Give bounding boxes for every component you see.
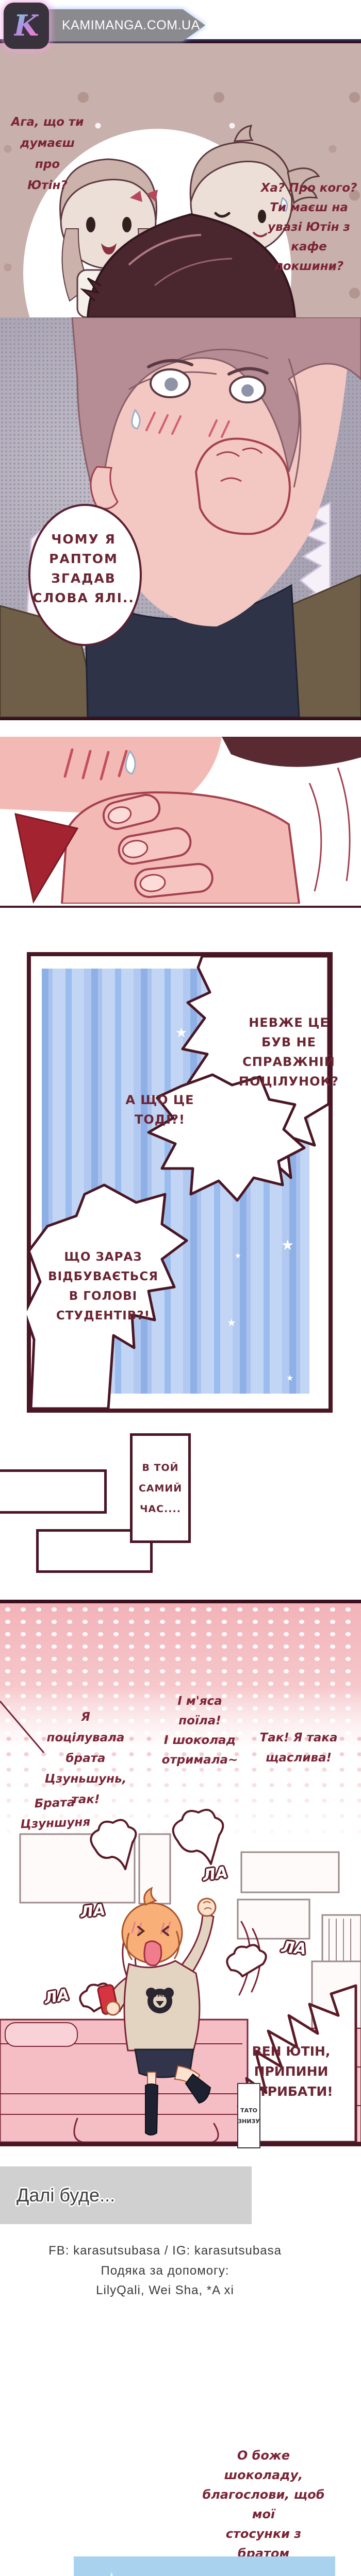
speech-left: Ага, що ти думаєш про Ютін? [6,112,89,196]
dad-note-box: ТАТО ЗНИЗУ [237,2083,260,2148]
logo-k-icon: K [14,9,39,43]
speech-line: думаєш про [6,133,89,175]
panel-praying: ★ ★ ★ ★ ★ ★ ★ ★ ★ ★ ★ ★ [74,2556,335,2576]
bubble-line: ЩО ЗАРАЗ [39,1247,168,1267]
prayer-line: О боже шоколаду, [199,2446,329,2485]
credit-names: LilyQali, Wei Sha, *A xi [0,2283,330,2298]
manga-page: KAMIMANGA.COM.UA K [0,0,361,2576]
thought-text: ЧОМУ Я РАПТОМ ЗГАДАВ СЛОВА ЯЛІ.. [32,530,135,608]
shout-line: ВЕН ЮТІН, [238,2041,344,2061]
to-be-continued-text: Далі буде... [0,2184,115,2206]
speech-right: Ха? Про кого? Ти маєш на увазі Ютін з ка… [260,178,357,276]
empty-panel-box [0,1469,107,1514]
shirt-logo-text: TUMAO [140,1992,182,1998]
to-be-continued-box: Далі буде... [0,2166,252,2224]
bubble-line: СПРАВЖНІЙ [232,1052,346,1072]
caption-box: В ТОЙ САМИЙ ЧАС.... [130,1433,191,1543]
thought-bubble-3-text: ЩО ЗАРАЗ ВІДБУВАЄТЬСЯ В ГОЛОВІ СТУДЕНТІВ… [39,1247,168,1326]
bubble-line: ПОЦІЛУНОК? [232,1072,346,1091]
star-icon: ★ [105,2569,119,2576]
note-line: ТАТО [240,2107,257,2114]
panel-hand [0,737,361,908]
neck-line [338,768,350,881]
credit-thanks: Подяка за допомогу: [0,2264,330,2278]
caption-line: ЧАС.... [140,1503,181,1515]
speech-line: Ютін? [6,175,89,196]
hair-mass [222,737,361,767]
neck-line [309,783,321,891]
thought-bubble-1-text: НЕВЖЕ ЦЕ БУВ НЕ СПРАВЖНІЙ ПОЦІЛУНОК? [232,1013,346,1091]
star-icon: ★ [227,1316,236,1329]
speech-line: Ти маєш на [260,198,357,217]
credit-social: FB: karasutsubasa / IG: karasutsubasa [0,2244,330,2258]
star-icon: ★ [309,1200,319,1213]
thought-line: СЛОВА ЯЛІ.. [32,588,135,608]
star-icon: ★ [175,1025,187,1041]
panel-blush: ЧОМУ Я РАПТОМ ЗГАДАВ СЛОВА ЯЛІ.. [0,317,361,720]
prayer-line: благослови, щоб мої [199,2485,329,2524]
caption-line: САМИЙ [139,1483,182,1494]
pointer-line [0,1701,44,1753]
bubble-line: БУВ НЕ [232,1032,346,1052]
thought-line: ЗГАДАВ [32,569,135,588]
bubble-line: ТОДІ?! [108,1110,211,1129]
site-logo[interactable]: K [4,3,49,49]
fist [196,439,290,534]
star-icon: ★ [281,1236,294,1253]
bubble-line: В ГОЛОВІ [39,1286,168,1306]
speech-line: Ха? Про кого? [260,178,357,198]
speech-line: кафе [260,237,357,257]
caption-line: В ТОЙ [142,1462,178,1473]
sfx-la: ЛА [281,1938,307,1959]
star-icon: ★ [286,1373,293,1383]
bubble-line: СТУДЕНТІВ?! [39,1306,168,1326]
site-title: KAMIMANGA.COM.UA [44,18,200,33]
speech-line: Ага, що ти [6,112,89,133]
sfx-la: ЛА [79,1901,106,1922]
thought-line: ЧОМУ Я [32,530,135,549]
star-icon: ★ [235,1252,241,1260]
sfx-la: ЛА [202,1863,229,1885]
speech-line: локшини? [260,257,357,276]
shout-line: ПРИПИНИ [238,2061,344,2081]
bubble-line: НЕВЖЕ ЦЕ [232,1013,346,1032]
thought-bubble-2-text: А ЩО ЦЕ ТОДІ?! [108,1090,211,1129]
site-banner[interactable]: KAMIMANGA.COM.UA [44,9,205,41]
panel-hand-art [0,737,361,904]
thought-line: РАПТОМ [32,549,135,569]
bed [0,2020,248,2142]
note-line: ЗНИЗУ [238,2118,260,2125]
bubble-line: А ЩО ЦЕ [108,1090,211,1110]
bubble-line: ВІДБУВАЄТЬСЯ [39,1267,168,1286]
speech-line: увазі Ютін з [260,217,357,237]
